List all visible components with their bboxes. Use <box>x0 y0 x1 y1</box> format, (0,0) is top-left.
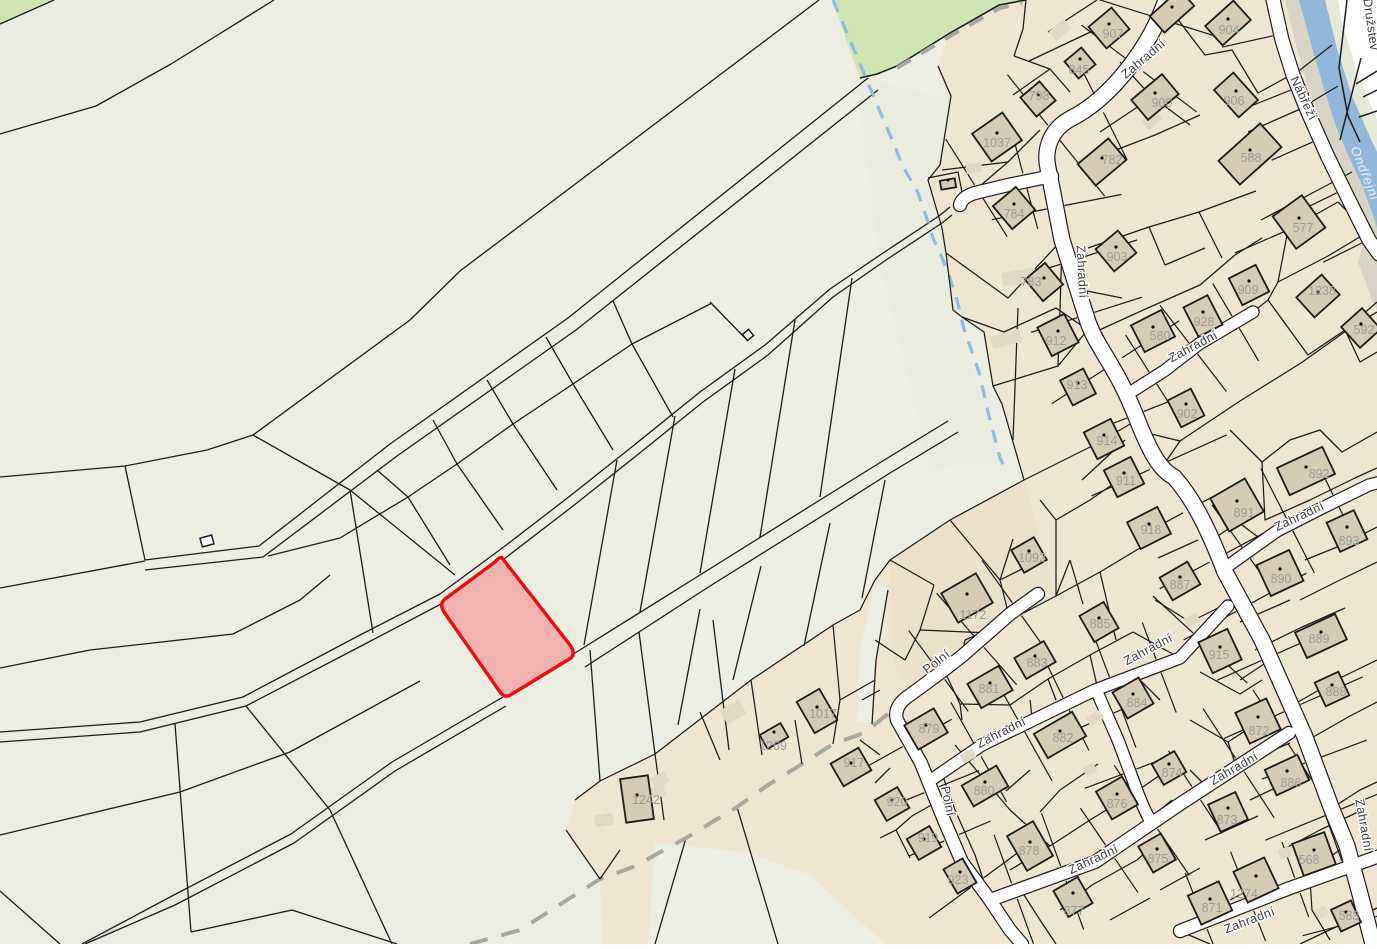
svg-text:783: 783 <box>1021 275 1042 289</box>
svg-text:1269: 1269 <box>759 739 787 753</box>
svg-text:784: 784 <box>1004 207 1025 221</box>
svg-text:891: 891 <box>1234 506 1255 520</box>
svg-text:913: 913 <box>1067 378 1088 392</box>
svg-text:798: 798 <box>1029 89 1050 103</box>
svg-text:893: 893 <box>1339 534 1360 548</box>
svg-text:909: 909 <box>1238 283 1259 297</box>
svg-text:887: 887 <box>1170 578 1191 592</box>
svg-text:886: 886 <box>1281 776 1302 790</box>
svg-text:882: 882 <box>1053 731 1074 745</box>
svg-text:1274: 1274 <box>1230 887 1258 901</box>
svg-text:928: 928 <box>1194 315 1215 329</box>
svg-text:907: 907 <box>1103 27 1124 41</box>
svg-text:845: 845 <box>1069 63 1090 77</box>
svg-text:580: 580 <box>1150 329 1171 343</box>
svg-text:1037: 1037 <box>983 136 1011 150</box>
svg-text:902: 902 <box>1177 407 1198 421</box>
svg-text:912: 912 <box>1046 334 1067 348</box>
svg-text:1092: 1092 <box>1018 551 1046 565</box>
svg-text:911: 911 <box>1116 474 1136 488</box>
svg-text:883: 883 <box>1027 656 1048 670</box>
svg-text:1242: 1242 <box>632 793 660 807</box>
svg-text:903: 903 <box>1107 250 1128 264</box>
svg-text:879: 879 <box>919 722 940 736</box>
svg-text:Zahradní: Zahradní <box>1074 245 1091 299</box>
svg-text:920: 920 <box>887 795 908 809</box>
svg-text:872: 872 <box>1249 724 1270 738</box>
svg-text:885: 885 <box>1090 617 1111 631</box>
svg-text:892: 892 <box>1309 467 1330 481</box>
svg-text:900: 900 <box>1152 96 1173 110</box>
svg-text:919: 919 <box>918 831 939 845</box>
svg-text:577: 577 <box>1293 221 1314 235</box>
svg-text:917: 917 <box>844 756 865 770</box>
svg-text:592: 592 <box>1354 323 1375 337</box>
svg-text:568: 568 <box>1299 853 1320 867</box>
svg-text:888: 888 <box>1326 685 1347 699</box>
svg-text:880: 880 <box>974 784 995 798</box>
svg-text:1172: 1172 <box>960 608 987 622</box>
svg-text:923: 923 <box>948 873 969 887</box>
svg-text:904: 904 <box>1219 23 1240 37</box>
svg-text:877: 877 <box>1064 904 1085 918</box>
svg-text:914: 914 <box>1097 434 1118 448</box>
svg-text:918: 918 <box>1141 523 1162 537</box>
svg-text:588: 588 <box>1241 151 1262 165</box>
svg-text:874: 874 <box>1162 766 1183 780</box>
svg-text:782: 782 <box>1102 153 1123 167</box>
svg-text:875: 875 <box>1148 852 1169 866</box>
svg-text:884: 884 <box>1127 696 1148 710</box>
svg-text:876: 876 <box>1107 797 1128 811</box>
svg-text:1238: 1238 <box>1308 284 1336 298</box>
svg-text:915: 915 <box>1209 648 1230 662</box>
svg-text:906: 906 <box>1224 94 1245 108</box>
svg-text:889: 889 <box>1309 632 1330 646</box>
svg-text:881: 881 <box>979 682 1000 696</box>
svg-text:890: 890 <box>1271 572 1292 586</box>
svg-text:583: 583 <box>1339 909 1360 923</box>
svg-text:878: 878 <box>1019 844 1040 858</box>
svg-text:871: 871 <box>1202 901 1223 915</box>
svg-text:873: 873 <box>1217 813 1238 827</box>
svg-text:1017: 1017 <box>809 707 837 721</box>
